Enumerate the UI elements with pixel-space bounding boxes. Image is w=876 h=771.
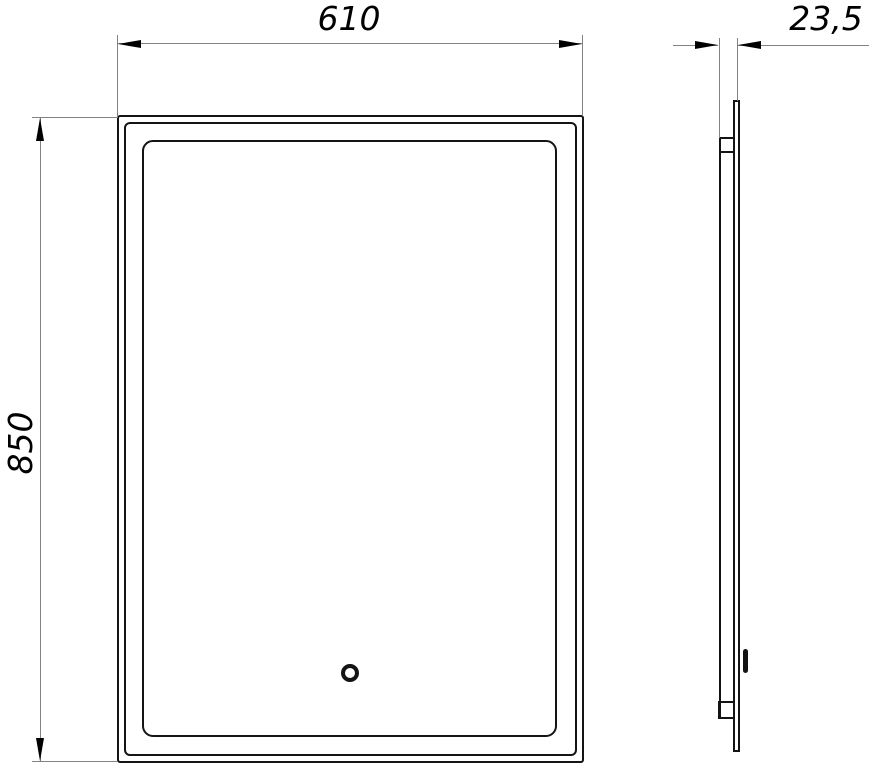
height-dimension-line xyxy=(40,118,41,762)
side-view-bottom-bracket xyxy=(718,701,735,719)
side-view-sensor-mark xyxy=(743,649,748,673)
side-view-glass-pane xyxy=(733,100,740,752)
side-view-top-bracket xyxy=(719,137,735,153)
width-arrow-left-icon xyxy=(118,40,141,48)
depth-arrow-left-icon xyxy=(738,41,761,49)
side-view-back-panel xyxy=(719,137,721,719)
drawing-canvas: 610 850 23,5 xyxy=(0,0,876,771)
width-extension-line-right xyxy=(582,35,583,116)
height-extension-line-bottom xyxy=(32,761,118,762)
width-arrow-right-icon xyxy=(559,40,582,48)
touch-sensor-circle-icon xyxy=(341,664,359,682)
height-extension-line-top xyxy=(32,117,118,118)
width-dimension-line xyxy=(118,43,582,44)
height-arrow-up-icon xyxy=(36,118,44,141)
depth-arrow-right-icon xyxy=(695,41,718,49)
depth-extension-line-left xyxy=(719,38,720,138)
depth-dimension-label: 23,5 xyxy=(780,1,872,37)
front-view-inner-frame xyxy=(142,140,557,737)
height-dimension-label: 850 xyxy=(3,383,39,503)
width-dimension-label: 610 xyxy=(299,1,399,37)
height-arrow-down-icon xyxy=(36,738,44,761)
